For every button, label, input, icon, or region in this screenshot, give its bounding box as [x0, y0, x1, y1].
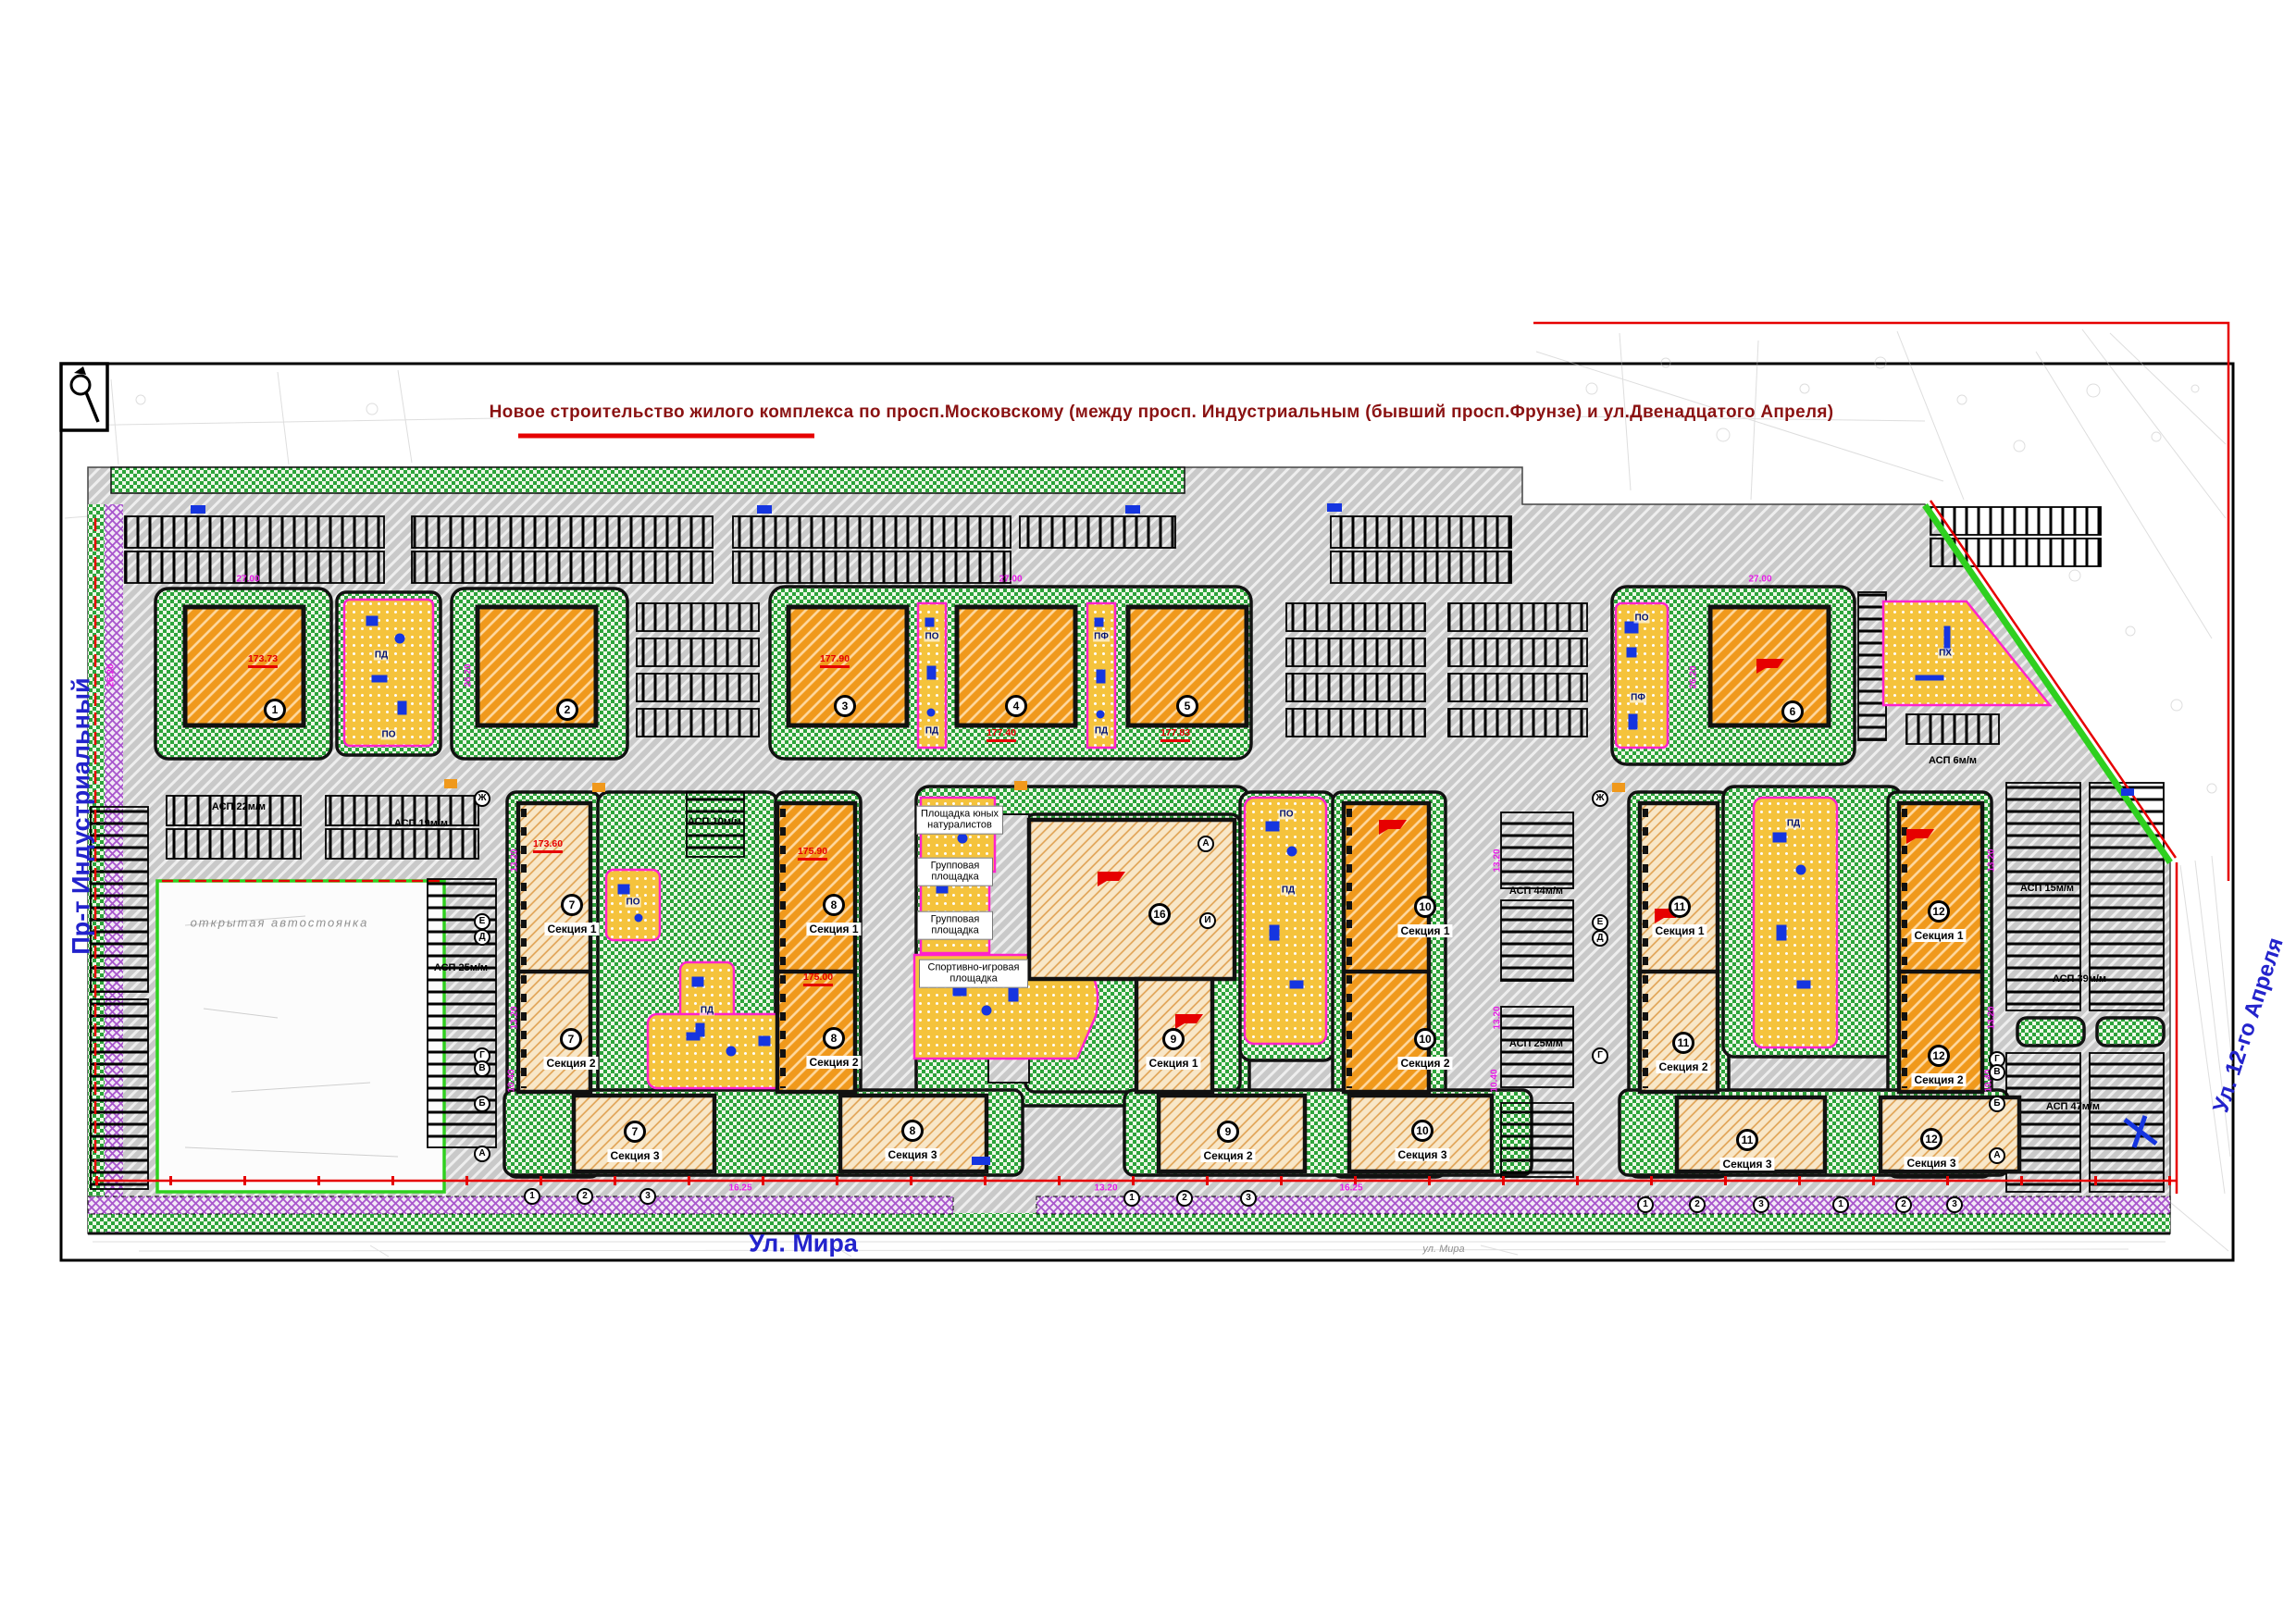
elevation-mark: 177.40	[987, 727, 1016, 742]
building-number-7: 7	[561, 894, 583, 916]
axis-marker: И	[1199, 912, 1216, 929]
building-number-9: 9	[1217, 1121, 1239, 1143]
section-label: Секция 2	[1397, 1057, 1452, 1070]
building-number-11: 11	[1672, 1032, 1694, 1054]
building-number-11: 11	[1669, 896, 1691, 918]
parking-count-label: АСП 44м/м	[1509, 886, 1563, 897]
dimension-label: 10.40	[507, 1069, 517, 1092]
street-survey-label-mira: ул. Мира	[1422, 1244, 1464, 1255]
building-number-8: 8	[823, 894, 845, 916]
area-label-sports-playground: Спортивно-игровая площадка	[919, 960, 1028, 988]
parking-count-label: АСП 19м/м	[394, 818, 448, 829]
site-plan-sheet: Новое строительство жилого комплекса по …	[0, 0, 2296, 1623]
dimension-label: 16.25	[728, 1183, 751, 1194]
building-number-3: 3	[834, 695, 856, 717]
axis-marker: Е	[1592, 914, 1608, 931]
axis-marker: 2	[1176, 1190, 1193, 1207]
parking-count-label: АСП 10м/м	[688, 816, 741, 827]
section-label: Секция 2	[1656, 1060, 1710, 1073]
section-label: Секция 1	[1397, 924, 1452, 937]
elevation-mark: 173.60	[533, 838, 563, 853]
axis-marker: Ж	[474, 790, 490, 807]
axis-marker: 3	[1240, 1190, 1257, 1207]
area-label-group-playground: Групповая площадка	[917, 858, 993, 886]
axis-marker: Д	[1592, 930, 1608, 947]
playground-code-po: ПО	[1634, 613, 1650, 624]
dimension-label: 10.40	[1490, 1069, 1500, 1092]
section-label: Секция 1	[544, 923, 599, 935]
dimension-label: 13.20	[1094, 1183, 1117, 1194]
area-label-group-playground: Групповая площадка	[917, 911, 993, 940]
dimension-label: 13.20	[1987, 849, 1997, 872]
dimension-label: 13.20	[510, 849, 520, 872]
section-label: Секция 3	[1904, 1157, 1958, 1170]
axis-marker: 2	[1895, 1196, 1912, 1213]
building-number-10: 10	[1411, 1120, 1433, 1142]
elevation-mark: 177.90	[820, 653, 850, 668]
section-label: Секция 1	[1146, 1057, 1200, 1070]
dimension-label: 13.20	[1493, 849, 1503, 872]
axis-marker: 1	[1123, 1190, 1140, 1207]
playground-code-pd: ПД	[1281, 886, 1296, 896]
dimension-label: 26.20	[106, 663, 117, 687]
building-number-8: 8	[901, 1120, 924, 1142]
dimension-label: 26.20	[1689, 665, 1699, 688]
dimension-label: 26.20	[464, 663, 474, 687]
axis-marker: 2	[1689, 1196, 1706, 1213]
building-number-8: 8	[823, 1027, 845, 1049]
axis-marker: Ж	[1592, 790, 1608, 807]
axis-marker: Е	[474, 913, 490, 930]
section-label: Секция 2	[543, 1057, 598, 1070]
parking-count-label: АСП 25м/м	[1509, 1038, 1563, 1049]
section-label: Секция 1	[806, 923, 861, 935]
parking-count-label: АСП 22м/м	[212, 801, 266, 812]
elevation-mark: 173.73	[248, 653, 278, 668]
street-label-industrialny: Пр-т Индустриальный	[68, 677, 96, 954]
axis-marker: 1	[1832, 1196, 1849, 1213]
building-number-9: 9	[1162, 1028, 1185, 1050]
axis-marker: 2	[577, 1188, 593, 1205]
building-number-12: 12	[1928, 900, 1950, 923]
playground-code-po: ПО	[925, 632, 940, 642]
parking-count-label: АСП 39м/м	[2053, 973, 2106, 985]
section-label: Секция 3	[885, 1148, 939, 1161]
section-label: Секция 3	[1719, 1158, 1774, 1171]
axis-marker: В	[474, 1060, 490, 1077]
axis-marker: 1	[524, 1188, 540, 1205]
playground-code-pd: ПД	[1786, 819, 1801, 829]
parking-count-label: АСП 15м/м	[2020, 883, 2074, 894]
axis-marker: Г	[1592, 1047, 1608, 1064]
playground-code-pd: ПД	[700, 1006, 714, 1016]
elevation-mark: 177.83	[1160, 727, 1190, 742]
section-label: Секция 2	[806, 1056, 861, 1069]
building-number-7: 7	[560, 1028, 582, 1050]
building-number-6: 6	[1781, 700, 1804, 723]
elevation-mark: 175.00	[803, 972, 833, 986]
axis-marker: 1	[1637, 1196, 1654, 1213]
building-number-16: 16	[1148, 903, 1171, 925]
playground-code-ph: ПХ	[1938, 649, 1953, 659]
dimension-label: 13.20	[1493, 1006, 1503, 1029]
building-number-4: 4	[1005, 695, 1027, 717]
dimension-label: 13.20	[510, 1006, 520, 1029]
building-number-2: 2	[556, 699, 578, 721]
playground-code-po: ПО	[626, 898, 641, 908]
elevation-mark: 175.90	[798, 846, 827, 861]
playground-code-pf: ПФ	[1093, 632, 1110, 642]
dimension-label: 16.25	[1339, 1183, 1362, 1194]
parking-count-label: АСП 6м/м	[1929, 755, 1977, 766]
playground-code-po: ПО	[1279, 810, 1295, 820]
dimension-label: 27.00	[999, 575, 1022, 585]
building-number-12: 12	[1928, 1045, 1950, 1067]
site-plan-drawing	[0, 0, 2296, 1623]
section-label: Секция 3	[1395, 1148, 1449, 1161]
building-number-5: 5	[1176, 695, 1198, 717]
building-number-1: 1	[264, 699, 286, 721]
axis-marker: В	[1989, 1064, 2005, 1081]
building-number-7: 7	[624, 1121, 646, 1143]
playground-code-pf: ПФ	[1630, 693, 1646, 703]
parking-count-label: АСП 25м/м	[434, 962, 488, 973]
building-number-12: 12	[1920, 1128, 1942, 1150]
axis-marker: 3	[639, 1188, 656, 1205]
dimension-label: 27.00	[1748, 575, 1771, 585]
section-label: Секция 2	[1911, 1073, 1966, 1086]
playground-code-pd: ПД	[1094, 726, 1109, 737]
section-label: Секция 3	[607, 1149, 662, 1162]
dimension-label: 27.00	[236, 575, 259, 585]
drawing-title: Новое строительство жилого комплекса по …	[490, 403, 1834, 423]
playground-code-pd: ПД	[374, 650, 389, 661]
area-label-open-parking: открытая автостоянка	[188, 915, 372, 933]
axis-marker: А	[1989, 1147, 2005, 1164]
area-label-young-naturalists: Площадка юных натуралистов	[916, 806, 1003, 835]
axis-marker: Д	[474, 929, 490, 946]
playground-code-po: ПО	[381, 730, 397, 740]
section-label: Секция 1	[1652, 924, 1706, 937]
building-number-10: 10	[1414, 1028, 1436, 1050]
axis-marker: Б	[1989, 1096, 2005, 1112]
building-number-11: 11	[1736, 1129, 1758, 1151]
axis-marker: Б	[474, 1096, 490, 1112]
axis-marker: 3	[1753, 1196, 1769, 1213]
north-arrow-icon	[61, 364, 107, 430]
axis-marker: А	[474, 1146, 490, 1162]
section-label: Секция 2	[1200, 1149, 1255, 1162]
playground-code-pd: ПД	[925, 726, 939, 737]
axis-marker: А	[1198, 836, 1214, 852]
parking-count-label: АСП 47м/м	[2046, 1101, 2100, 1112]
dimension-label: 13.20	[1987, 1006, 1997, 1029]
section-label: Секция 1	[1911, 929, 1966, 942]
building-number-10: 10	[1414, 896, 1436, 918]
axis-marker: 3	[1946, 1196, 1963, 1213]
street-label-mira: Ул. Мира	[749, 1230, 858, 1258]
